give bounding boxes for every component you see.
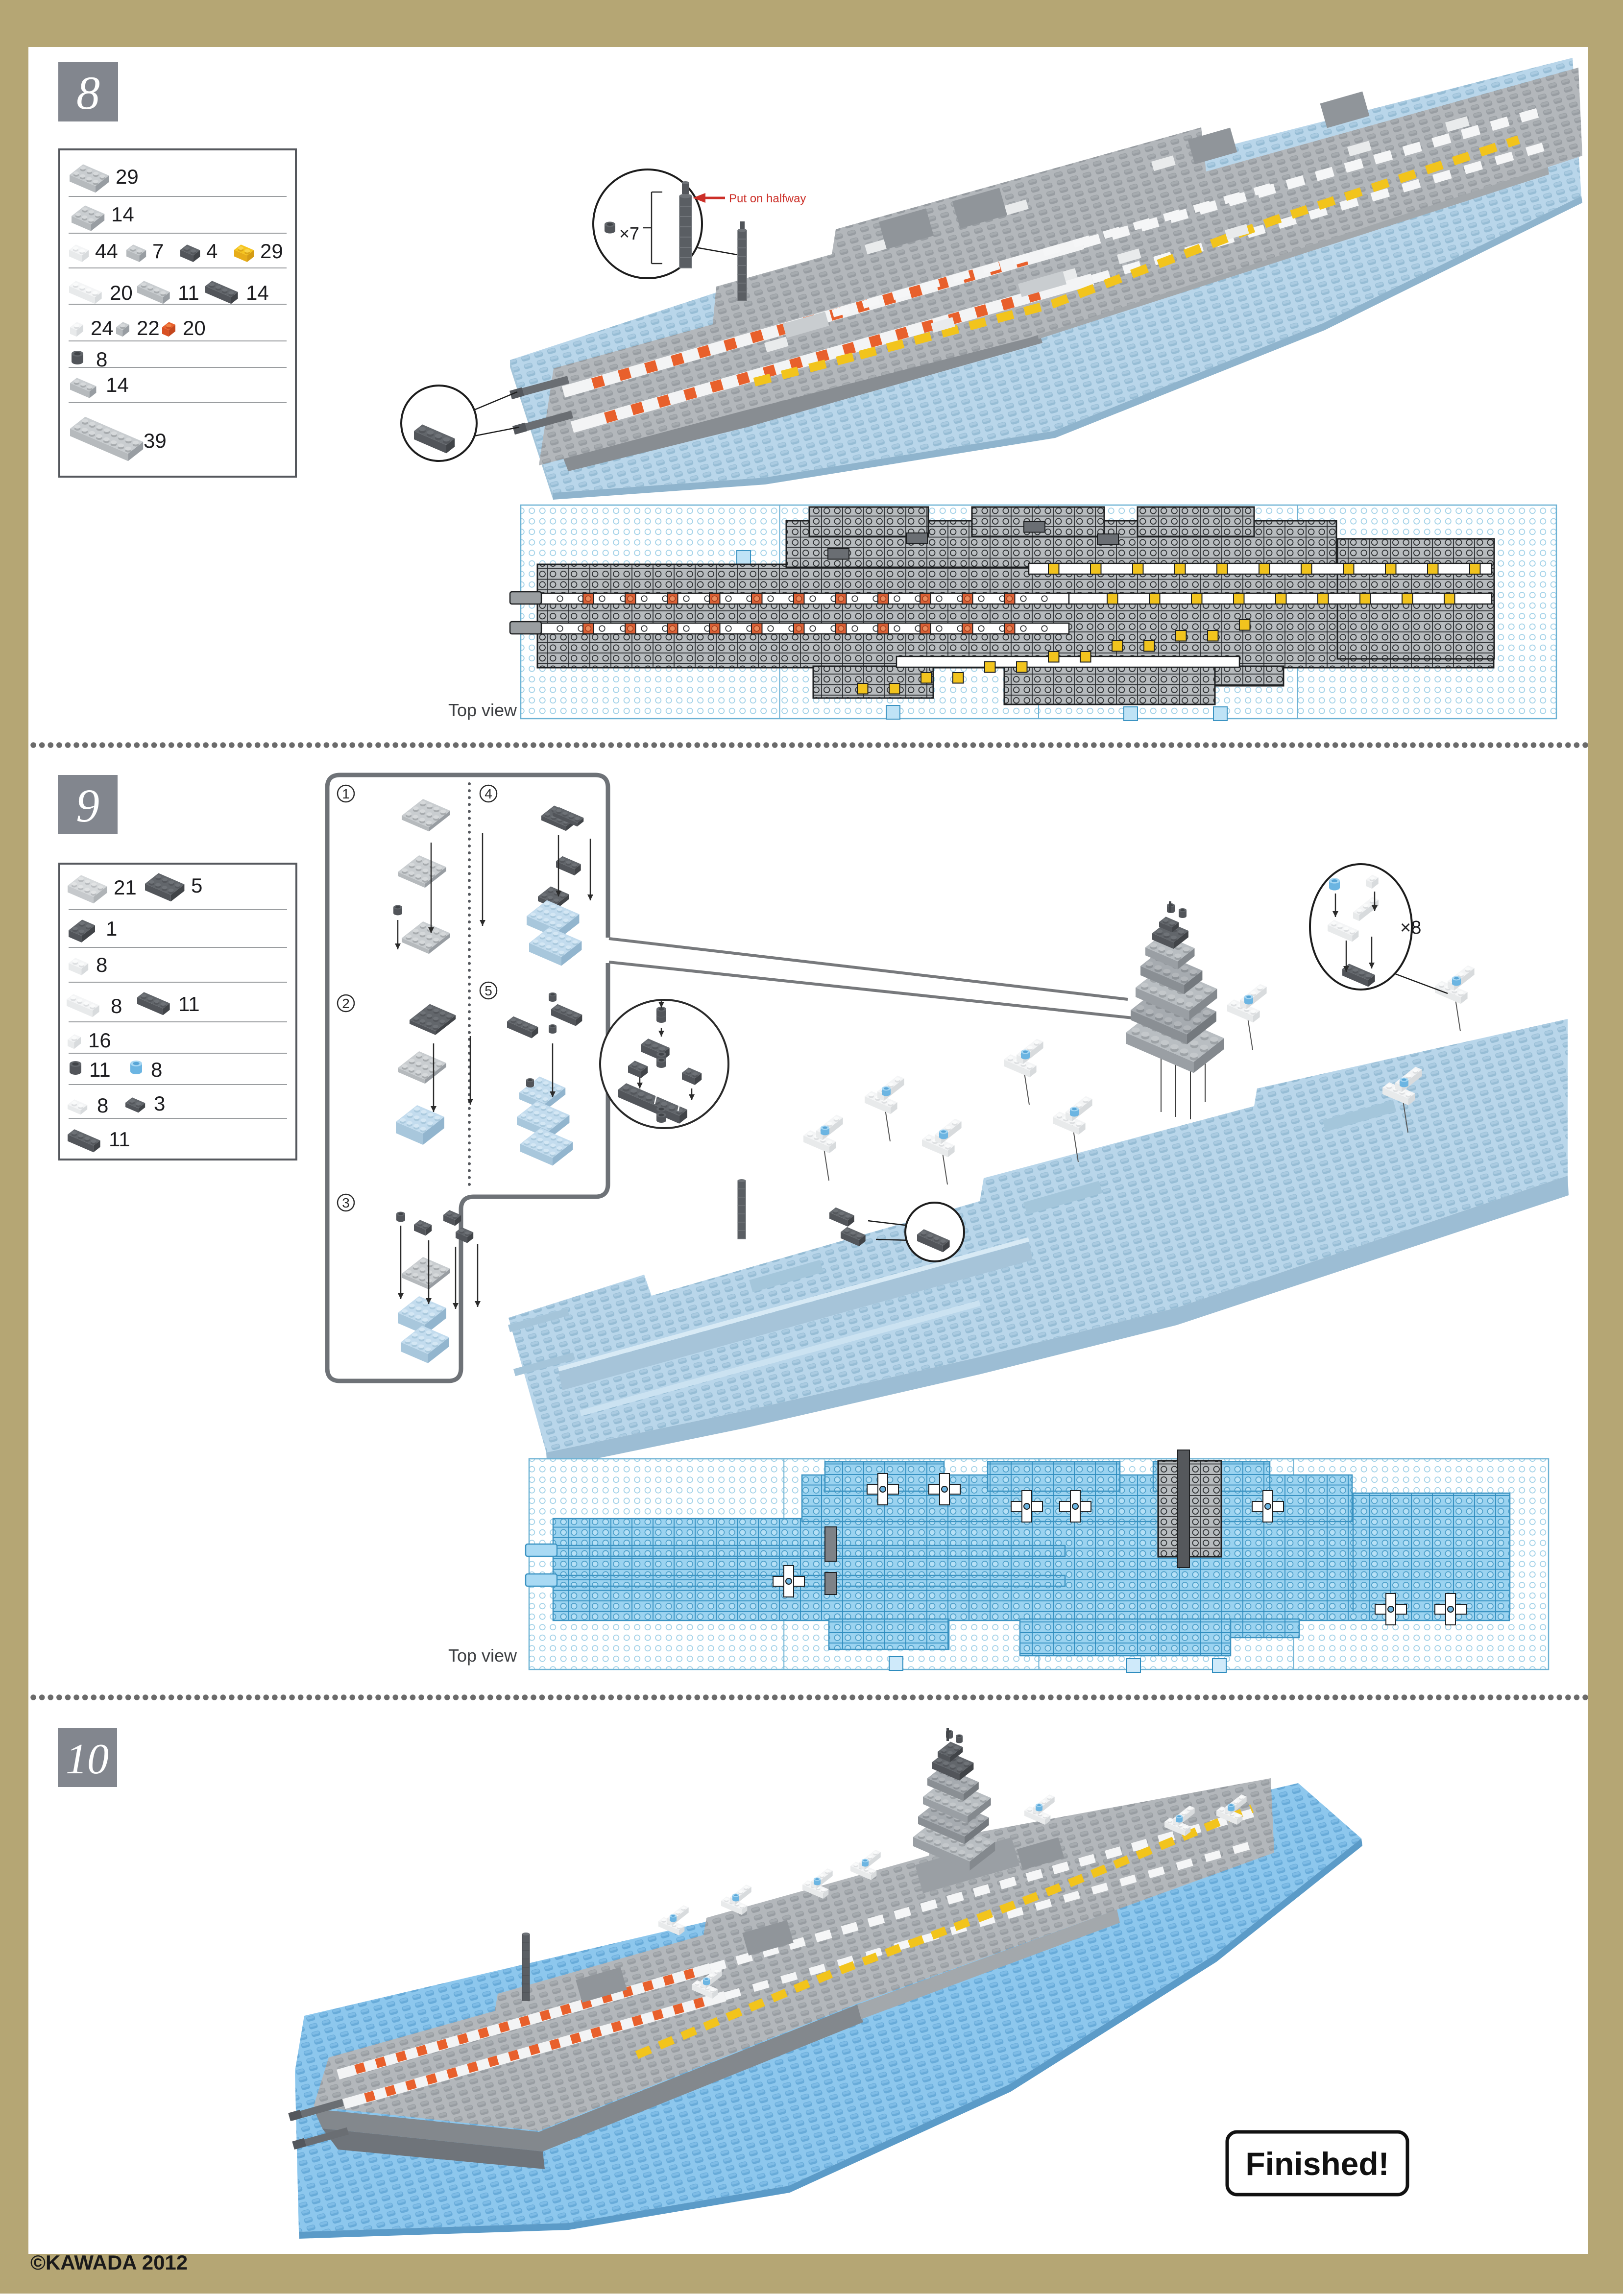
svg-text:14: 14	[246, 281, 269, 304]
svg-text:14: 14	[106, 373, 129, 396]
svg-text:21: 21	[114, 876, 137, 899]
svg-text:11: 11	[178, 992, 200, 1015]
svg-text:1: 1	[342, 786, 350, 801]
svg-text:7: 7	[152, 240, 164, 263]
svg-text:9: 9	[76, 779, 99, 832]
svg-text:29: 29	[260, 240, 283, 263]
svg-text:8: 8	[96, 348, 107, 371]
svg-text:22: 22	[137, 316, 160, 339]
svg-text:Top view: Top view	[448, 700, 517, 720]
svg-text:5: 5	[484, 983, 492, 998]
svg-text:2: 2	[342, 996, 350, 1011]
svg-text:8: 8	[97, 1094, 108, 1117]
svg-text:×8: ×8	[1400, 918, 1421, 938]
svg-text:8: 8	[96, 953, 107, 976]
svg-text:4: 4	[484, 786, 492, 801]
svg-text:39: 39	[144, 429, 167, 452]
svg-text:11: 11	[178, 281, 199, 304]
svg-text:Put on halfway: Put on halfway	[729, 192, 806, 205]
svg-text:11: 11	[89, 1058, 111, 1081]
svg-text:Top view: Top view	[448, 1645, 517, 1666]
svg-text:Finished!: Finished!	[1245, 2146, 1389, 2182]
svg-text:8: 8	[111, 994, 122, 1017]
svg-text:4: 4	[206, 240, 218, 263]
svg-text:5: 5	[191, 874, 202, 897]
svg-text:16: 16	[88, 1029, 111, 1052]
svg-text:29: 29	[116, 165, 139, 188]
svg-text:44: 44	[95, 240, 118, 263]
svg-text:8: 8	[76, 67, 100, 119]
svg-text:11: 11	[109, 1128, 130, 1151]
svg-text:3: 3	[154, 1092, 165, 1115]
svg-text:10: 10	[66, 1736, 109, 1783]
svg-text:©KAWADA 2012: ©KAWADA 2012	[30, 2251, 188, 2274]
svg-text:20: 20	[183, 316, 206, 339]
svg-text:14: 14	[111, 203, 134, 226]
svg-text:20: 20	[110, 281, 133, 304]
svg-text:×7: ×7	[619, 223, 639, 243]
svg-text:3: 3	[342, 1195, 350, 1210]
svg-text:24: 24	[91, 316, 114, 339]
svg-text:8: 8	[151, 1058, 162, 1081]
svg-text:1: 1	[106, 917, 117, 940]
